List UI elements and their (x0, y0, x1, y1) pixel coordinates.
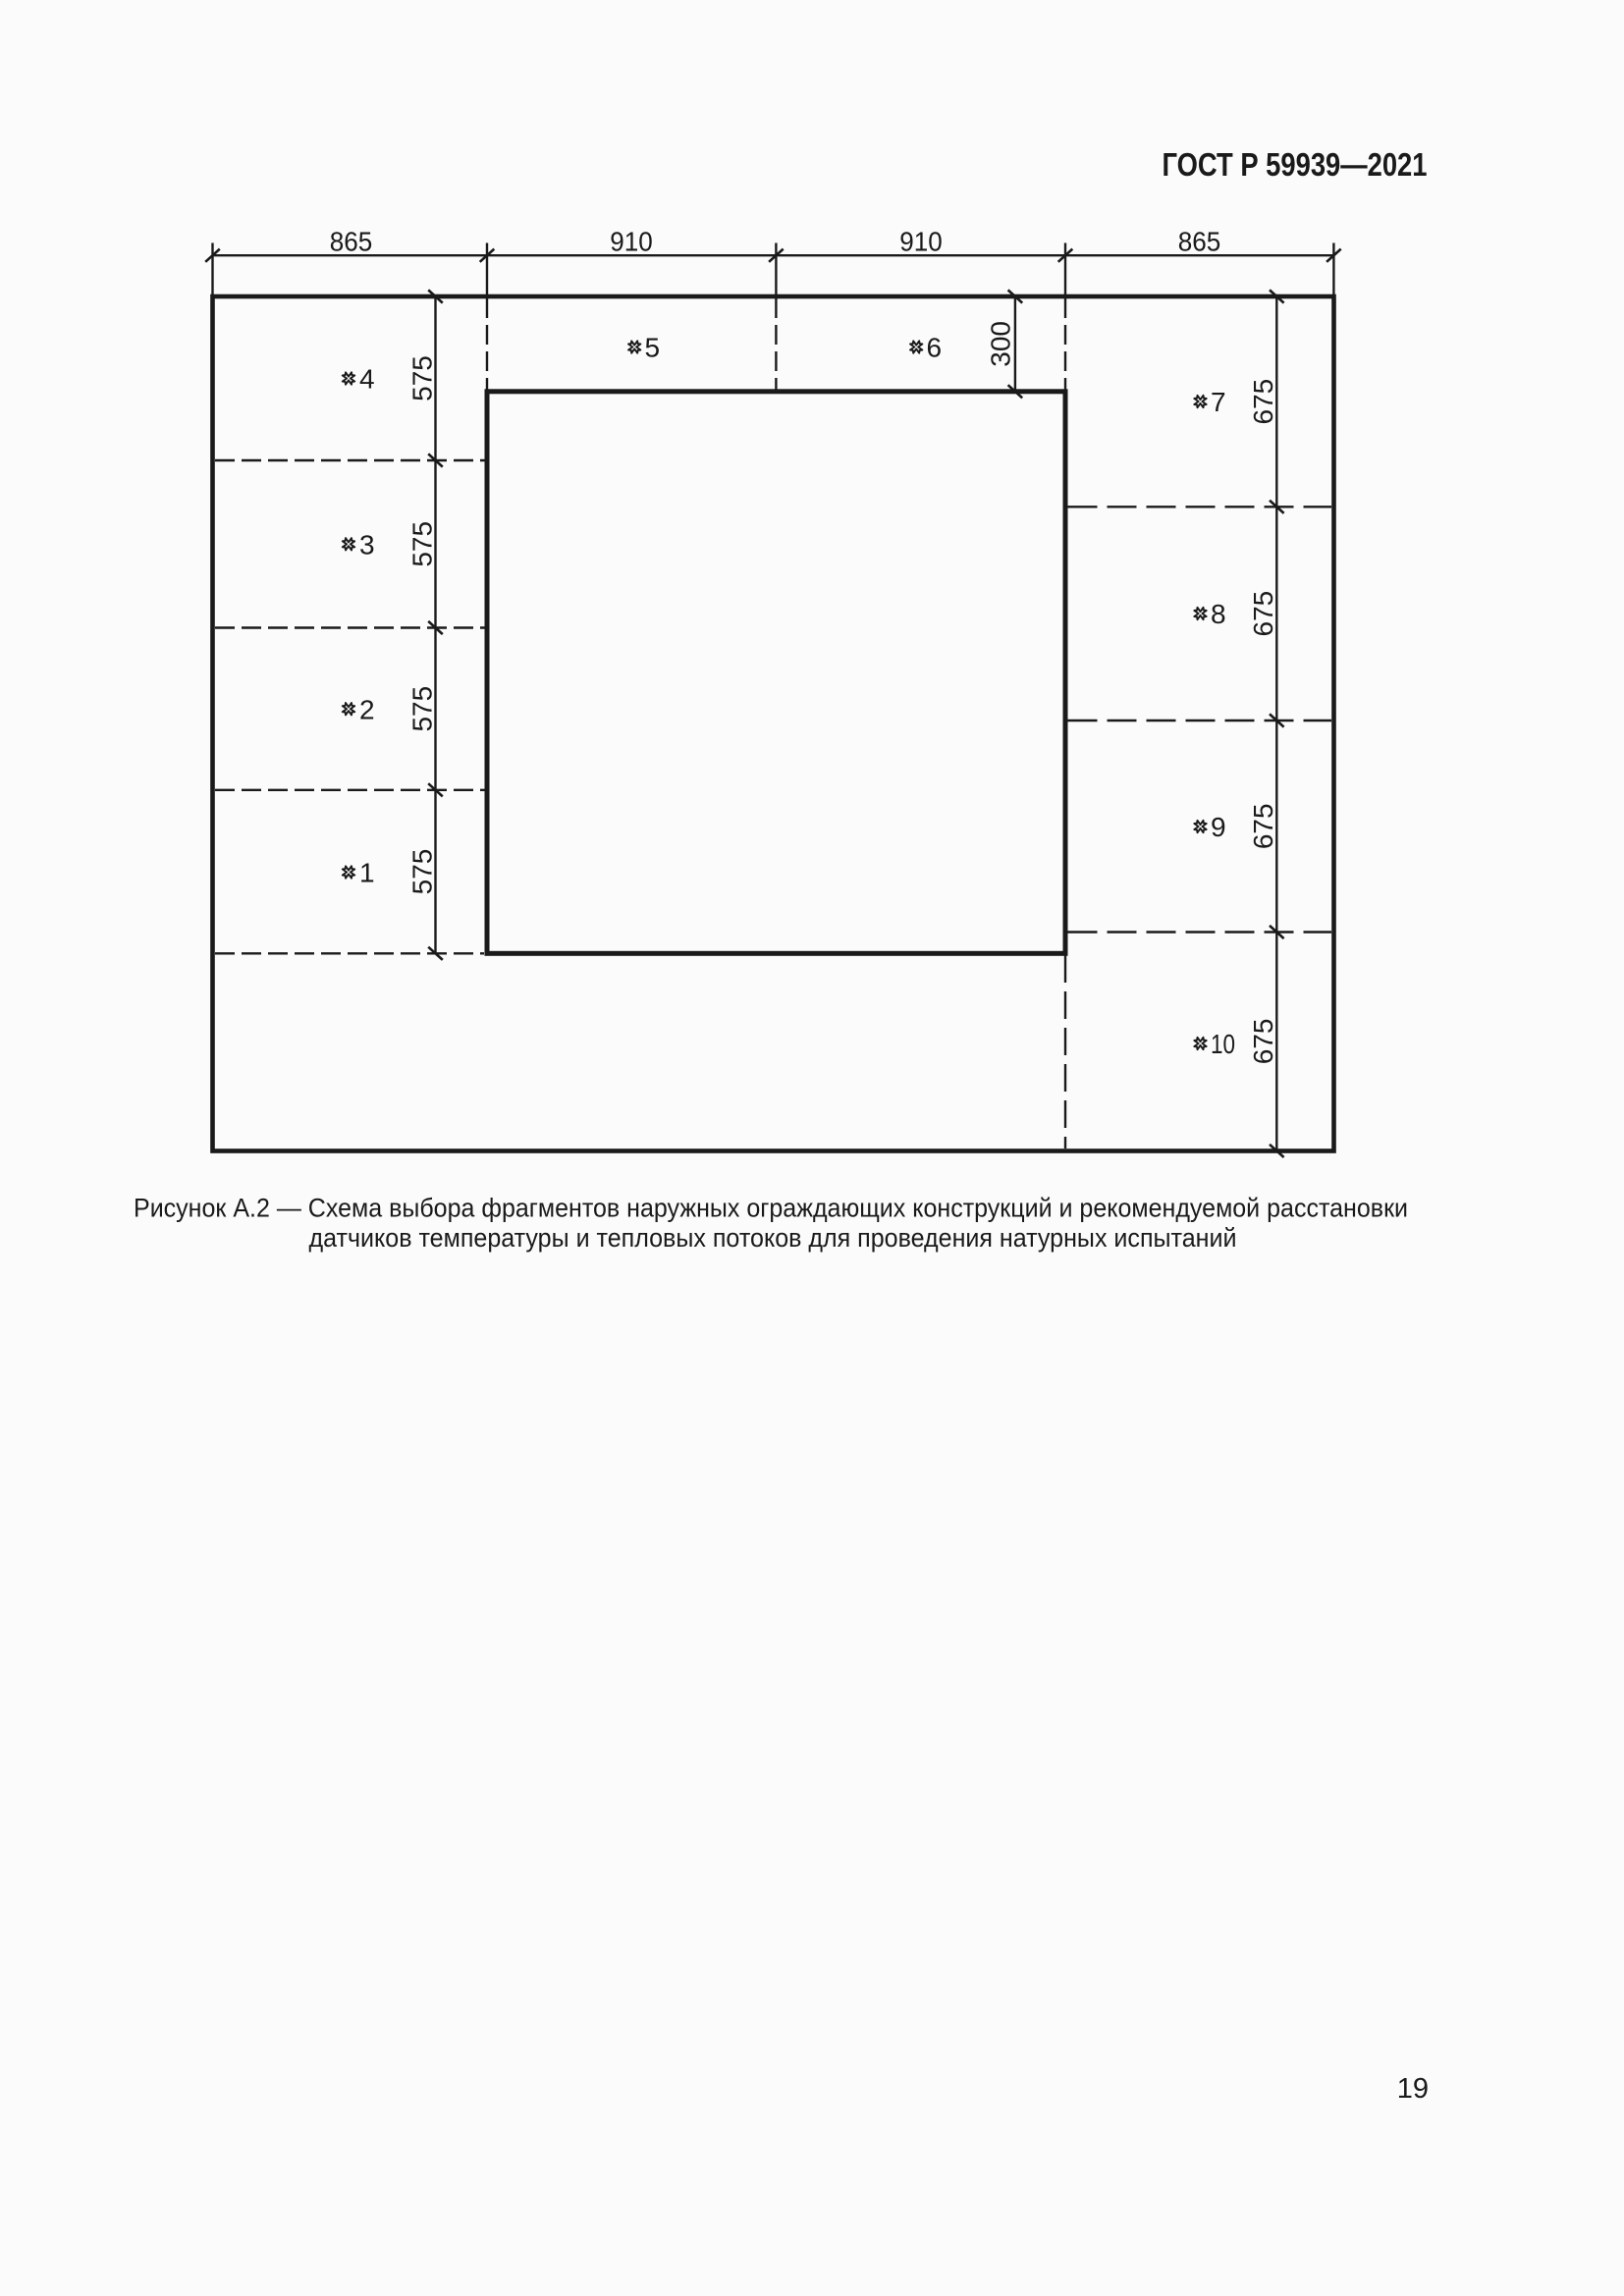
svg-text:575: 575 (407, 355, 438, 401)
svg-text:10: 10 (1211, 1029, 1235, 1059)
svg-text:910: 910 (610, 227, 653, 257)
svg-text:19: 19 (1397, 2073, 1429, 2105)
svg-text:датчиков температуры и тепловы: датчиков температуры и тепловых потоков … (309, 1223, 1237, 1253)
svg-text:865: 865 (330, 227, 373, 257)
svg-text:675: 675 (1248, 1019, 1278, 1065)
svg-text:8: 8 (1211, 599, 1226, 629)
svg-text:Рисунок А.2 — Схема выбора фра: Рисунок А.2 — Схема выбора фрагментов на… (134, 1193, 1408, 1222)
svg-text:300: 300 (986, 321, 1016, 367)
svg-text:2: 2 (359, 694, 375, 724)
svg-text:575: 575 (407, 849, 438, 895)
svg-text:ГОСТ Р 59939—2021: ГОСТ Р 59939—2021 (1163, 146, 1428, 183)
svg-text:575: 575 (407, 521, 438, 567)
svg-text:575: 575 (407, 686, 438, 732)
svg-text:5: 5 (645, 333, 661, 363)
svg-text:1: 1 (359, 858, 375, 888)
svg-text:910: 910 (899, 227, 943, 257)
svg-text:675: 675 (1248, 803, 1278, 849)
svg-text:9: 9 (1211, 812, 1226, 842)
svg-text:4: 4 (359, 364, 375, 395)
svg-text:7: 7 (1211, 387, 1226, 417)
svg-text:6: 6 (927, 333, 943, 363)
svg-text:3: 3 (359, 530, 375, 561)
svg-text:675: 675 (1248, 591, 1278, 637)
svg-text:675: 675 (1248, 379, 1278, 425)
svg-text:865: 865 (1178, 227, 1221, 257)
